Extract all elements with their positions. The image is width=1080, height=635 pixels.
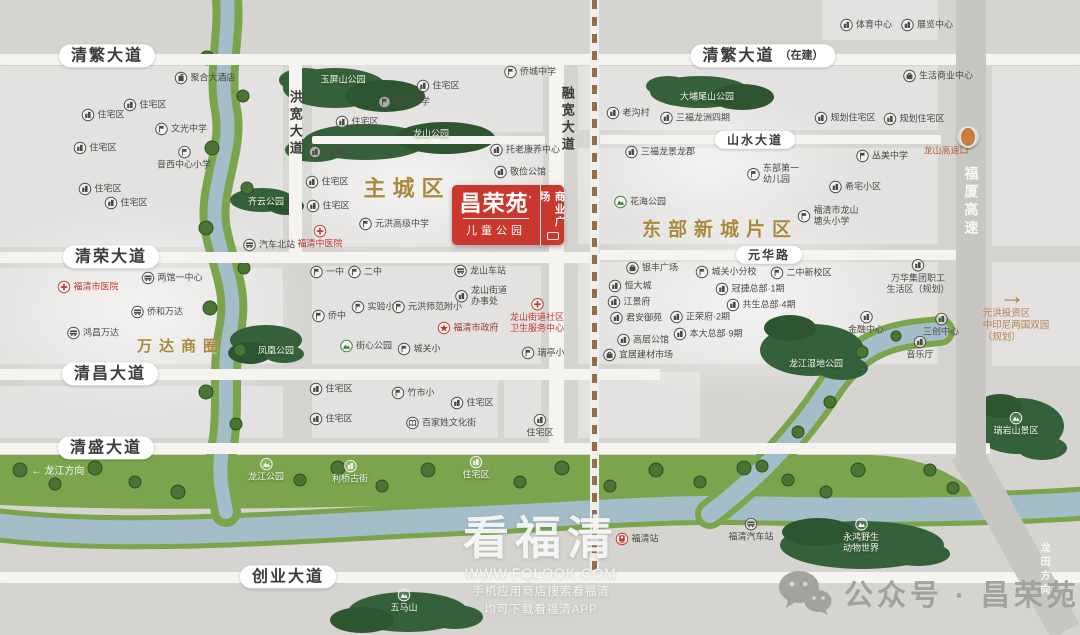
label-text: 体育中心 bbox=[856, 20, 892, 31]
tree bbox=[13, 463, 27, 477]
label-text: 清盛大道 bbox=[70, 438, 142, 457]
road-label: 创业大道 bbox=[240, 565, 336, 588]
label-suffix: （在建） bbox=[780, 49, 824, 62]
district-label: 东部新城片区 bbox=[642, 220, 798, 243]
label-text: 住宅区 bbox=[324, 147, 351, 158]
label-text: 龙江湿地公园 bbox=[789, 359, 843, 370]
label-text: 聚合大酒店 bbox=[190, 73, 235, 84]
label-text: 住宅区 bbox=[432, 81, 459, 92]
label-text: 文光中学 bbox=[171, 124, 207, 135]
label-text: 主城区 bbox=[363, 176, 450, 202]
poi-label: 住宅区 bbox=[450, 397, 493, 410]
bld-icon bbox=[306, 200, 319, 213]
bld-icon bbox=[309, 383, 322, 396]
label-text: 万达商圈 bbox=[137, 338, 225, 356]
label-text: 汽车北站 bbox=[259, 240, 295, 251]
wechat-account: 公众号 · 昌荣苑 bbox=[778, 570, 1080, 616]
tree bbox=[294, 474, 306, 486]
label-text: 齐云公园 bbox=[248, 197, 284, 208]
bld-icon bbox=[829, 181, 842, 194]
bld-icon bbox=[73, 142, 86, 155]
map-text: 元洪投资区中印尼两国双园（规划） bbox=[983, 308, 1050, 344]
label-text: 三福龙洲四期 bbox=[676, 113, 730, 124]
poi-label: 共生总部·4期 bbox=[726, 299, 795, 312]
label-text: 一中 bbox=[326, 267, 344, 278]
hosp-icon bbox=[313, 225, 326, 238]
label-text: 展览中心 bbox=[917, 20, 953, 31]
poi-label: 二中新校区 bbox=[770, 267, 831, 280]
shop-icon bbox=[903, 70, 916, 83]
bld-icon bbox=[78, 183, 91, 196]
label-text: 元华路 bbox=[748, 248, 790, 262]
label-text: 冠捷总部·1期 bbox=[731, 284, 784, 295]
poi-label: 江景府 bbox=[607, 296, 650, 309]
poi-label: 音西中心小学 bbox=[157, 146, 211, 171]
label-text: 三福龙景龙郡 bbox=[641, 147, 695, 158]
label-text: 住宅区 bbox=[94, 184, 121, 195]
park-label: 五马山 bbox=[390, 589, 417, 614]
bus-icon bbox=[131, 306, 144, 319]
poi-label: 城关小 bbox=[397, 343, 440, 356]
label-text: 万华集团职工生活区（规划） bbox=[886, 273, 949, 296]
park-icon bbox=[340, 340, 353, 353]
poi-label: 希宅小区 bbox=[829, 181, 881, 194]
tree bbox=[824, 396, 836, 408]
bld-icon bbox=[123, 99, 136, 112]
park-label: 瑞岩山景区 bbox=[993, 412, 1038, 437]
bld-icon bbox=[911, 259, 924, 272]
label-text: 宜居建材市场 bbox=[619, 350, 673, 361]
tree bbox=[129, 476, 141, 488]
tree bbox=[792, 426, 804, 438]
bld-icon bbox=[450, 397, 463, 410]
label-text: 山水大道 bbox=[727, 133, 783, 147]
poi-label: 侨和万达 bbox=[131, 306, 183, 319]
logo-subtitle: 儿童公园 bbox=[466, 222, 526, 238]
poi-label: 花海公园 bbox=[614, 196, 666, 209]
tree bbox=[604, 480, 616, 492]
label-text: 大埔尾山公园 bbox=[680, 92, 734, 103]
label-text: 两馆一中心 bbox=[157, 273, 202, 284]
changrongyuan-logo: 昌荣苑’ 儿童公园 商业广场 bbox=[452, 185, 564, 245]
poi-label: 住宅区 bbox=[123, 99, 166, 112]
label-text: 福清中医院 bbox=[297, 239, 342, 250]
label-text: 君安御苑 bbox=[626, 313, 662, 324]
bld-icon bbox=[901, 19, 914, 32]
logo-seal bbox=[547, 232, 559, 240]
label-text: 侨城中学 bbox=[520, 67, 556, 78]
road-label: 清昌大道 bbox=[62, 362, 158, 385]
poi-label: 展览中心 bbox=[901, 19, 953, 32]
bld-icon bbox=[494, 166, 507, 179]
label-text: 玉屏小学 bbox=[394, 97, 430, 108]
label-text: 希宅小区 bbox=[845, 182, 881, 193]
park-label: 齐云公园 bbox=[248, 197, 284, 208]
logo-trademark: ’ bbox=[529, 194, 533, 204]
poi-label: 住宅区 bbox=[309, 413, 352, 426]
label-text: 凤凰公园 bbox=[258, 346, 294, 357]
poi-label: 鸿昌万达 bbox=[67, 327, 119, 340]
bus-icon bbox=[744, 518, 757, 531]
park-label: 永鸿野生动物世界 bbox=[843, 518, 879, 555]
label-text: 福清市政府 bbox=[453, 323, 498, 334]
label-text: 百家姓文化街 bbox=[422, 418, 476, 429]
poi-label: 宜居建材市场 bbox=[603, 349, 673, 362]
park-icon bbox=[1009, 412, 1022, 425]
label-text: 住宅区 bbox=[322, 201, 349, 212]
poi-label: 住宅区 bbox=[306, 200, 349, 213]
sch-icon bbox=[504, 66, 517, 79]
label-text: 江景府 bbox=[623, 297, 650, 308]
label-text: 龙山高速口 bbox=[923, 146, 968, 157]
poi-label: 城关小分校 bbox=[695, 266, 756, 279]
label-text: 利桥古街 bbox=[332, 474, 368, 485]
hosp-icon bbox=[530, 298, 543, 311]
label-text: 二中 bbox=[364, 267, 382, 278]
star-icon bbox=[437, 322, 450, 335]
location-map: 昌荣苑’ 儿童公园 商业广场 看福清 WWW.FQLOOK.COM 手机应用商店… bbox=[0, 0, 1080, 635]
tree bbox=[230, 418, 242, 430]
poi-label: 瑞亭小 bbox=[521, 347, 564, 360]
poi-label: 住宅区 bbox=[73, 142, 116, 155]
shop-icon bbox=[626, 262, 639, 275]
bld-icon bbox=[608, 280, 621, 293]
sch-icon bbox=[797, 210, 810, 223]
park-icon bbox=[259, 458, 272, 471]
bus-icon bbox=[141, 272, 154, 285]
bld-icon bbox=[883, 113, 896, 126]
park-label: 大埔尾山公园 bbox=[680, 92, 734, 103]
bus-icon bbox=[454, 265, 467, 278]
label-text: 福清市龙山塘头小学 bbox=[813, 205, 858, 228]
hotel-icon bbox=[174, 72, 187, 85]
label-text: 清繁大道 bbox=[702, 46, 774, 65]
tree bbox=[171, 485, 185, 499]
bld-icon bbox=[343, 460, 356, 473]
sch-icon bbox=[856, 150, 869, 163]
bld-icon bbox=[533, 414, 546, 427]
poi-label: 恒大城 bbox=[608, 280, 651, 293]
label-text: 金融中心 bbox=[848, 325, 884, 336]
sch-icon bbox=[392, 301, 405, 314]
label-text: 银丰广场 bbox=[642, 263, 678, 274]
poi-label: 三福龙洲四期 bbox=[660, 112, 730, 125]
label-text: 元洪师范附小 bbox=[408, 302, 462, 313]
label-text: 住宅区 bbox=[321, 177, 348, 188]
poi-label: 侨中 bbox=[312, 310, 346, 323]
bld-icon bbox=[469, 456, 482, 469]
label-text: 二中新校区 bbox=[786, 268, 831, 279]
sch-icon bbox=[695, 266, 708, 279]
poi-label: 冠捷总部·1期 bbox=[715, 283, 784, 296]
poi-label: 丛美中学 bbox=[856, 150, 908, 163]
label-text: 侨和万达 bbox=[147, 307, 183, 318]
bld-icon bbox=[913, 336, 926, 349]
label-text: 清繁大道 bbox=[71, 46, 143, 65]
label-text: 清昌大道 bbox=[74, 364, 146, 383]
label-text: 城关小分校 bbox=[711, 267, 756, 278]
label-text: 福清站 bbox=[631, 534, 658, 545]
poi-label: 规划住宅区 bbox=[814, 112, 875, 125]
shop-icon bbox=[603, 349, 616, 362]
road-label-vertical: 融宽大道 bbox=[559, 86, 575, 154]
tree bbox=[203, 301, 217, 315]
poi-label: 龙山街道社区卫生服务中心 bbox=[510, 298, 564, 335]
sch-icon bbox=[747, 168, 760, 181]
sch-icon bbox=[397, 343, 410, 356]
label-text: 正荣府·2期 bbox=[686, 312, 730, 323]
bld-icon bbox=[607, 296, 620, 309]
road-label: 元华路 bbox=[736, 246, 802, 264]
tree bbox=[737, 461, 751, 475]
label-text: 音西中心小学 bbox=[157, 160, 211, 171]
sch-icon bbox=[177, 146, 190, 159]
sch-icon bbox=[359, 218, 372, 231]
label-text: 住宅区 bbox=[89, 143, 116, 154]
label-text: 城关小 bbox=[413, 344, 440, 355]
label-text: 住宅区 bbox=[120, 198, 147, 209]
tree bbox=[88, 461, 102, 475]
poi-label: 龙山车站 bbox=[454, 265, 506, 278]
wechat-icon bbox=[778, 570, 832, 616]
poi-label: 住宅区 bbox=[416, 80, 459, 93]
cult-icon bbox=[406, 417, 419, 430]
poi-label: 银丰广场 bbox=[626, 262, 678, 275]
label-text: 元洪投资区中印尼两国双园（规划） bbox=[983, 308, 1050, 344]
poi-label: 三福龙景龙郡 bbox=[625, 146, 695, 159]
poi-label: 福清市医院 bbox=[57, 281, 118, 294]
bld-icon bbox=[309, 413, 322, 426]
park-label: 住宅区 bbox=[462, 456, 489, 481]
poi-label: 本大总部·9期 bbox=[673, 328, 742, 341]
tree bbox=[924, 464, 936, 476]
poi-label: 福清市龙山塘头小学 bbox=[797, 205, 858, 228]
label-text: 龙山车站 bbox=[470, 266, 506, 277]
label-text: 托老康养中心 bbox=[506, 145, 560, 156]
road-label-vertical: 洪宽大道 bbox=[287, 90, 303, 158]
poi-label: 元洪高级中学 bbox=[359, 218, 429, 231]
label-text: 高层公馆 bbox=[633, 335, 669, 346]
tree bbox=[756, 460, 768, 472]
label-text: 住宅区 bbox=[97, 110, 124, 121]
tree bbox=[49, 478, 61, 490]
label-text: 永鸿野生动物世界 bbox=[843, 532, 879, 555]
tree bbox=[514, 476, 526, 488]
sch-icon bbox=[348, 266, 361, 279]
bld-icon bbox=[606, 107, 619, 120]
tree bbox=[234, 344, 246, 356]
interchange-marker bbox=[957, 126, 979, 148]
bld-icon bbox=[335, 116, 348, 129]
poi-label: 老沟村 bbox=[606, 107, 649, 120]
poi-label: 福清站 bbox=[615, 533, 658, 546]
label-text: 福厦高速 bbox=[963, 166, 980, 238]
map-text: ← 龙江方向 bbox=[32, 466, 85, 478]
poi-label: 龙山街道办事处 bbox=[455, 285, 507, 308]
bld-icon bbox=[715, 283, 728, 296]
poi-label: 住宅区 bbox=[81, 109, 124, 122]
bld-icon bbox=[814, 112, 827, 125]
label-text: 本大总部·9期 bbox=[689, 329, 742, 340]
sch-icon bbox=[770, 267, 783, 280]
tree bbox=[241, 182, 253, 194]
map-text: 龙山高速口 bbox=[923, 146, 968, 157]
park-label: 凤凰公园 bbox=[258, 346, 294, 357]
poi-label: 金融中心 bbox=[848, 311, 884, 336]
road-label: 清盛大道 bbox=[58, 436, 154, 459]
bld-icon bbox=[934, 313, 947, 326]
label-text: 龙江公园 bbox=[248, 472, 284, 483]
poi-label: 敬俭公馆 bbox=[494, 166, 546, 179]
bus-icon bbox=[243, 239, 256, 252]
road-label: 清荣大道 bbox=[63, 245, 159, 268]
bld-icon bbox=[625, 146, 638, 159]
poi-label: 高层公馆 bbox=[617, 334, 669, 347]
sch-icon bbox=[391, 387, 404, 400]
bld-icon bbox=[840, 19, 853, 32]
sch-icon bbox=[312, 310, 325, 323]
poi-label: 住宅区 bbox=[526, 414, 553, 439]
poi-label: 竹市小 bbox=[391, 387, 434, 400]
poi-label: 二中 bbox=[348, 266, 382, 279]
tree bbox=[199, 221, 213, 235]
label-text: 生活商业中心 bbox=[919, 71, 973, 82]
label-text: ← 龙江方向 bbox=[32, 466, 85, 478]
label-text: 龙山街道办事处 bbox=[471, 285, 507, 308]
park-label: 玉屏山公园 bbox=[320, 75, 365, 86]
label-text: 住宅区 bbox=[325, 414, 352, 425]
poi-label: 体育中心 bbox=[840, 19, 892, 32]
poi-label: 福清中医院 bbox=[297, 225, 342, 250]
park-icon bbox=[614, 196, 627, 209]
tree bbox=[947, 482, 959, 494]
district-label: 主城区 bbox=[363, 176, 450, 202]
poi-label: 聚合大酒店 bbox=[174, 72, 235, 85]
label-text: → bbox=[999, 280, 1025, 311]
label-text: 音乐厅 bbox=[906, 350, 933, 361]
label-text: 规划住宅区 bbox=[899, 114, 944, 125]
tree bbox=[237, 90, 249, 102]
park-icon bbox=[854, 518, 867, 531]
park-icon bbox=[397, 589, 410, 602]
wechat-account-name: 公众号 · 昌荣苑 bbox=[844, 572, 1080, 614]
poi-label: 正荣府·2期 bbox=[670, 311, 730, 324]
label-text: 瑞亭小 bbox=[537, 348, 564, 359]
poi-label: 音乐厅 bbox=[906, 336, 933, 361]
bld-icon bbox=[455, 290, 468, 303]
bld-icon bbox=[104, 197, 117, 210]
tree bbox=[238, 262, 250, 274]
label-text: 东部新城片区 bbox=[642, 220, 798, 243]
poi-label: 东部第一幼儿园 bbox=[747, 163, 799, 186]
tree bbox=[694, 476, 706, 488]
poi-label: 君安御苑 bbox=[610, 312, 662, 325]
poi-label: 汽车北站 bbox=[243, 239, 295, 252]
label-text: 鸿昌万达 bbox=[83, 328, 119, 339]
tree bbox=[376, 480, 388, 492]
bld-icon bbox=[308, 146, 321, 159]
bld-icon bbox=[660, 112, 673, 125]
park-label: 龙山公园 bbox=[413, 129, 449, 140]
poi-label: 住宅区 bbox=[78, 183, 121, 196]
poi-label: 侨城中学 bbox=[504, 66, 556, 79]
label-text: 玉屏山公园 bbox=[320, 75, 365, 86]
bld-icon bbox=[670, 311, 683, 324]
poi-label: 实验小 bbox=[351, 301, 394, 314]
sch-icon bbox=[521, 347, 534, 360]
bld-icon bbox=[81, 109, 94, 122]
label-text: 住宅区 bbox=[139, 100, 166, 111]
poi-label: 文光中学 bbox=[155, 123, 207, 136]
label-text: 龙山街道社区卫生服务中心 bbox=[510, 312, 564, 335]
road-label-vertical: 福厦高速 bbox=[963, 166, 980, 238]
label-text: 花海公园 bbox=[630, 197, 666, 208]
park-label: 利桥古街 bbox=[332, 460, 368, 485]
bus-icon bbox=[67, 327, 80, 340]
poi-label: 住宅区 bbox=[308, 146, 351, 159]
map-text: → bbox=[999, 280, 1025, 311]
sch-icon bbox=[378, 96, 391, 109]
sch-icon bbox=[310, 266, 323, 279]
poi-label: 万华集团职工生活区（规划） bbox=[886, 259, 949, 296]
road bbox=[0, 54, 1080, 65]
poi-label: 住宅区 bbox=[309, 383, 352, 396]
bld-icon bbox=[490, 144, 503, 157]
sch-icon bbox=[351, 301, 364, 314]
label-text: 清荣大道 bbox=[75, 247, 147, 266]
bld-icon bbox=[617, 334, 630, 347]
tree bbox=[421, 463, 435, 477]
poi-label: 街心公园 bbox=[340, 340, 392, 353]
logo-side-panel: 商业广场 bbox=[541, 185, 564, 245]
logo-project-name: 昌荣苑’ bbox=[459, 193, 532, 215]
logo-divider bbox=[463, 218, 528, 219]
label-text: 街心公园 bbox=[356, 341, 392, 352]
label-text: 洪宽大道 bbox=[287, 90, 303, 158]
poi-label: 住宅区 bbox=[305, 176, 348, 189]
label-text: 住宅区 bbox=[462, 470, 489, 481]
poi-label: 玉屏小学 bbox=[378, 96, 430, 109]
poi-label: 元洪师范附小 bbox=[392, 301, 462, 314]
road-label: 清繁大道 bbox=[59, 44, 155, 67]
tree bbox=[856, 346, 868, 358]
label-text: 规划住宅区 bbox=[830, 113, 875, 124]
label-text: 老沟村 bbox=[622, 108, 649, 119]
label-text: 竹市小 bbox=[407, 388, 434, 399]
tree bbox=[820, 486, 832, 498]
label-text: 瑞岩山景区 bbox=[993, 426, 1038, 437]
label-text: 住宅区 bbox=[466, 398, 493, 409]
label-text: 东部第一幼儿园 bbox=[763, 163, 799, 186]
bld-icon bbox=[416, 80, 429, 93]
park-label: 龙江湿地公园 bbox=[789, 359, 843, 370]
tree bbox=[199, 385, 213, 399]
label-text: 元洪高级中学 bbox=[375, 219, 429, 230]
label-text: 创业大道 bbox=[252, 567, 324, 586]
hosp-icon bbox=[57, 281, 70, 294]
bld-icon bbox=[673, 328, 686, 341]
district-label: 万达商圈 bbox=[137, 338, 225, 356]
poi-label: 规划住宅区 bbox=[883, 113, 944, 126]
label-text: 五马山 bbox=[390, 603, 417, 614]
label-text: 福清市医院 bbox=[73, 282, 118, 293]
tree bbox=[782, 474, 794, 486]
logo-main: 昌荣苑’ 儿童公园 bbox=[452, 185, 541, 245]
road-label: 清繁大道（在建） bbox=[690, 44, 835, 67]
bld-icon bbox=[859, 311, 872, 324]
label-text: 敬俭公馆 bbox=[510, 167, 546, 178]
poi-label: 两馆一中心 bbox=[141, 272, 202, 285]
